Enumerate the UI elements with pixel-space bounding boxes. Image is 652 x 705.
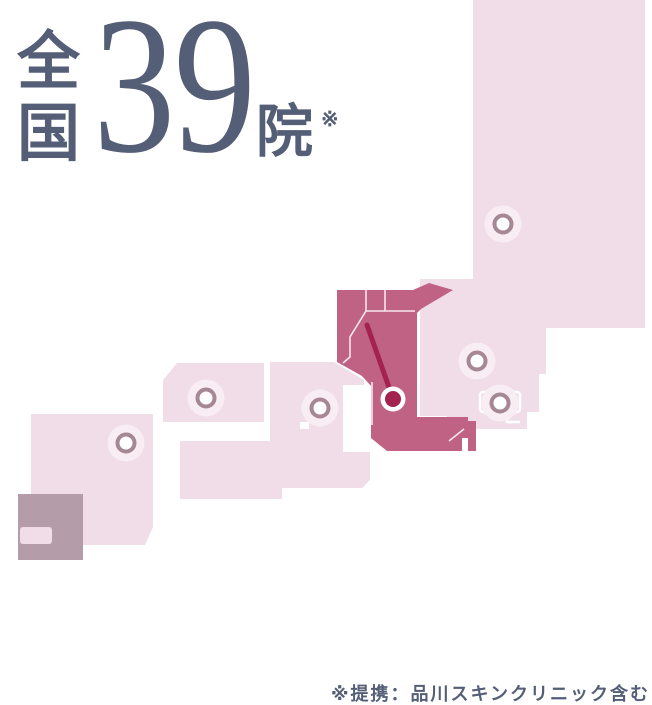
clinic-map-page: 全国 39 院 ※ ※提携：品川スキンクリニック含む — [0, 0, 652, 705]
title-unit: 院 — [256, 102, 313, 165]
marker-kinki — [188, 380, 225, 417]
clinic-dot-icon — [495, 216, 512, 233]
lake-biwa-notch — [300, 422, 309, 429]
marker-tohoku-north — [459, 343, 496, 380]
marker-kyushu — [108, 425, 145, 462]
clinic-dot-icon — [118, 435, 135, 452]
marker-tokyo[interactable] — [381, 387, 406, 412]
marker-tohoku-south — [482, 385, 519, 422]
title-clinic-count: 39 — [93, 0, 254, 184]
marker-chubu — [302, 390, 339, 427]
clinic-dot-icon — [198, 390, 215, 407]
region-hokkaido[interactable] — [473, 0, 645, 328]
clinic-dot-icon — [492, 395, 509, 412]
footnote: ※提携：品川スキンクリニック含む — [331, 680, 650, 705]
highlight-pin-icon — [385, 391, 401, 407]
clinic-dot-icon — [312, 400, 329, 417]
clinic-dot-icon — [469, 353, 486, 370]
marker-hokkaido — [485, 206, 522, 243]
region-shikoku[interactable] — [180, 441, 282, 499]
title-asterisk: ※ — [321, 109, 339, 130]
title-region-word: 全国 — [17, 26, 85, 170]
okinawa-island-block — [20, 527, 52, 544]
